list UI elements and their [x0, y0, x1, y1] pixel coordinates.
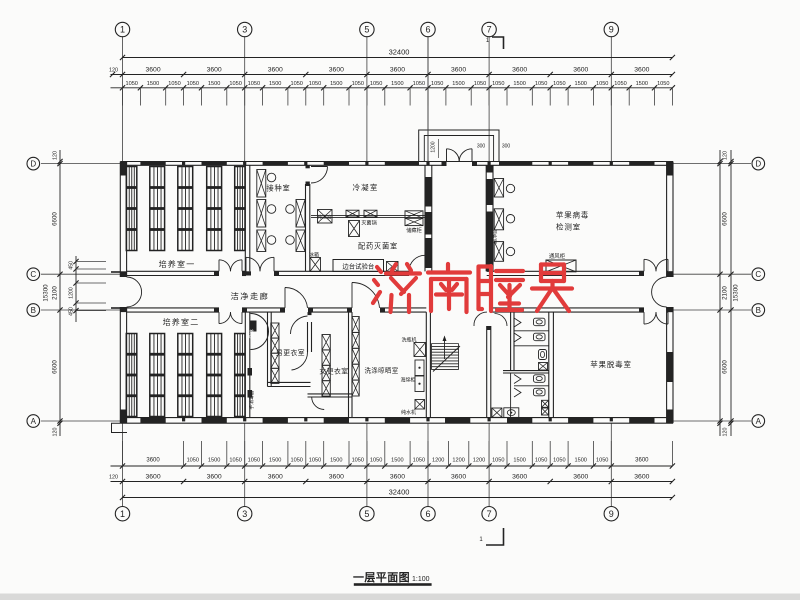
svg-text:1500: 1500	[330, 458, 342, 464]
svg-text:1200: 1200	[473, 458, 485, 464]
svg-text:3600: 3600	[634, 67, 649, 74]
svg-text:1: 1	[120, 25, 125, 35]
svg-text:1050: 1050	[187, 81, 199, 87]
svg-text:3600: 3600	[634, 474, 649, 481]
svg-text:1500: 1500	[330, 81, 342, 87]
svg-text:冷凝室: 冷凝室	[352, 182, 378, 192]
svg-text:1: 1	[120, 509, 125, 519]
svg-text:1500: 1500	[636, 81, 648, 87]
svg-text:1050: 1050	[125, 81, 137, 87]
svg-text:1050: 1050	[229, 458, 241, 464]
svg-text:手消毒器: 手消毒器	[248, 390, 255, 409]
svg-text:1050: 1050	[614, 81, 626, 87]
svg-text:1050: 1050	[370, 458, 382, 464]
svg-text:300: 300	[477, 144, 486, 150]
svg-text:1050: 1050	[492, 458, 504, 464]
svg-text:1500: 1500	[391, 81, 403, 87]
svg-text:1050: 1050	[248, 458, 260, 464]
svg-text:B: B	[756, 306, 761, 315]
svg-text:苹果病毒: 苹果病毒	[556, 210, 589, 220]
svg-text:15300: 15300	[733, 284, 740, 302]
svg-text:1050: 1050	[492, 81, 504, 87]
svg-text:15300: 15300	[43, 284, 50, 302]
svg-text:3600: 3600	[329, 67, 344, 74]
svg-text:32400: 32400	[389, 488, 410, 497]
svg-text:灭菌锅: 灭菌锅	[361, 219, 377, 227]
svg-text:风淋: 风淋	[249, 329, 256, 339]
svg-text:2100: 2100	[52, 286, 59, 300]
svg-text:1050: 1050	[352, 81, 364, 87]
svg-text:1500: 1500	[452, 81, 464, 87]
svg-text:C: C	[30, 270, 36, 279]
svg-text:450: 450	[69, 307, 75, 316]
svg-text:1500: 1500	[269, 458, 281, 464]
svg-text:苹果脱毒室: 苹果脱毒室	[590, 359, 632, 369]
svg-text:检测室: 检测室	[556, 222, 581, 232]
svg-text:3600: 3600	[635, 458, 649, 464]
svg-text:3600: 3600	[146, 458, 160, 464]
svg-text:6: 6	[425, 509, 430, 519]
svg-text:3600: 3600	[268, 67, 283, 74]
svg-text:1050: 1050	[309, 458, 321, 464]
svg-text:1050: 1050	[290, 458, 302, 464]
svg-text:洗涤晾晒室: 洗涤晾晒室	[365, 366, 399, 375]
svg-text:1050: 1050	[413, 458, 425, 464]
svg-text:1050: 1050	[352, 458, 364, 464]
svg-text:3600: 3600	[573, 474, 588, 481]
svg-text:1:100: 1:100	[412, 576, 430, 583]
svg-text:边台试验台: 边台试验台	[342, 261, 374, 270]
svg-text:传递窗: 传递窗	[318, 213, 332, 220]
svg-text:32400: 32400	[389, 48, 410, 57]
svg-text:120: 120	[723, 428, 729, 437]
svg-text:1050: 1050	[413, 81, 425, 87]
svg-text:1050: 1050	[168, 81, 180, 87]
svg-text:1050: 1050	[553, 458, 565, 464]
svg-text:男更衣室: 男更衣室	[276, 348, 305, 357]
svg-text:120: 120	[53, 428, 59, 437]
svg-text:纯水机: 纯水机	[401, 409, 416, 416]
svg-text:A: A	[31, 417, 37, 426]
svg-text:9: 9	[609, 509, 614, 519]
svg-text:储藏柜: 储藏柜	[406, 226, 422, 234]
svg-text:洁净走廊: 洁净走廊	[231, 291, 270, 301]
svg-text:1050: 1050	[553, 81, 565, 87]
svg-text:1200: 1200	[452, 458, 464, 464]
svg-text:3600: 3600	[451, 67, 466, 74]
svg-text:3600: 3600	[268, 474, 283, 481]
svg-text:9: 9	[609, 25, 614, 35]
svg-text:120: 120	[109, 68, 118, 74]
svg-text:6600: 6600	[722, 360, 729, 374]
svg-text:D: D	[30, 159, 36, 168]
svg-text:通风柜: 通风柜	[549, 252, 566, 260]
svg-text:6: 6	[425, 25, 430, 35]
svg-text:1500: 1500	[513, 81, 525, 87]
svg-text:7: 7	[487, 509, 492, 519]
svg-text:3600: 3600	[329, 474, 344, 481]
svg-text:1500: 1500	[574, 458, 586, 464]
svg-text:1200: 1200	[69, 287, 75, 299]
svg-text:3600: 3600	[390, 474, 405, 481]
svg-text:6600: 6600	[52, 212, 59, 226]
svg-text:A: A	[756, 417, 762, 426]
svg-text:D: D	[755, 159, 761, 168]
svg-text:一层平面图: 一层平面图	[353, 571, 410, 584]
svg-text:1050: 1050	[657, 81, 669, 87]
svg-text:1500: 1500	[208, 458, 220, 464]
svg-text:1500: 1500	[269, 81, 281, 87]
svg-text:120: 120	[109, 475, 118, 481]
svg-text:1050: 1050	[596, 81, 608, 87]
svg-text:3600: 3600	[207, 67, 222, 74]
svg-text:3: 3	[242, 25, 247, 35]
svg-text:2100: 2100	[722, 286, 729, 300]
svg-text:3600: 3600	[390, 67, 405, 74]
svg-text:300: 300	[502, 144, 511, 150]
svg-text:培养室一: 培养室一	[159, 259, 196, 269]
svg-text:1050: 1050	[370, 81, 382, 87]
svg-text:3600: 3600	[512, 67, 527, 74]
svg-text:3: 3	[242, 509, 247, 519]
svg-text:C: C	[755, 270, 761, 279]
svg-text:1050: 1050	[596, 458, 608, 464]
svg-text:7: 7	[487, 25, 492, 35]
svg-text:3600: 3600	[145, 67, 160, 74]
svg-text:1050: 1050	[535, 81, 547, 87]
svg-text:1500: 1500	[208, 81, 220, 87]
svg-text:1050: 1050	[290, 81, 302, 87]
svg-text:5: 5	[364, 509, 369, 519]
svg-text:1050: 1050	[229, 81, 241, 87]
svg-text:B: B	[31, 306, 36, 315]
svg-text:培养室二: 培养室二	[163, 317, 200, 327]
svg-text:1500: 1500	[513, 458, 525, 464]
svg-text:接种室: 接种室	[267, 184, 291, 193]
svg-text:1500: 1500	[147, 81, 159, 87]
svg-text:120: 120	[53, 151, 59, 160]
svg-text:3600: 3600	[512, 474, 527, 481]
svg-text:6600: 6600	[722, 212, 729, 226]
svg-text:5: 5	[364, 25, 369, 35]
svg-text:1050: 1050	[187, 458, 199, 464]
svg-text:1200: 1200	[431, 141, 437, 152]
svg-text:3600: 3600	[451, 474, 466, 481]
svg-text:1050: 1050	[474, 81, 486, 87]
svg-text:120: 120	[723, 151, 729, 160]
svg-text:6600: 6600	[52, 360, 59, 374]
svg-text:3600: 3600	[573, 67, 588, 74]
svg-text:1050: 1050	[535, 458, 547, 464]
svg-text:海绵柜: 海绵柜	[400, 377, 415, 384]
svg-text:超净台: 超净台	[492, 229, 499, 244]
svg-text:1050: 1050	[248, 81, 260, 87]
svg-text:3600: 3600	[207, 474, 222, 481]
svg-text:1200: 1200	[432, 458, 444, 464]
svg-text:1500: 1500	[391, 458, 403, 464]
svg-text:配药灭菌室: 配药灭菌室	[358, 242, 398, 251]
svg-text:1500: 1500	[574, 81, 586, 87]
svg-text:1050: 1050	[309, 81, 321, 87]
svg-text:450: 450	[69, 261, 75, 270]
svg-text:3600: 3600	[145, 474, 160, 481]
svg-text:1050: 1050	[431, 81, 443, 87]
